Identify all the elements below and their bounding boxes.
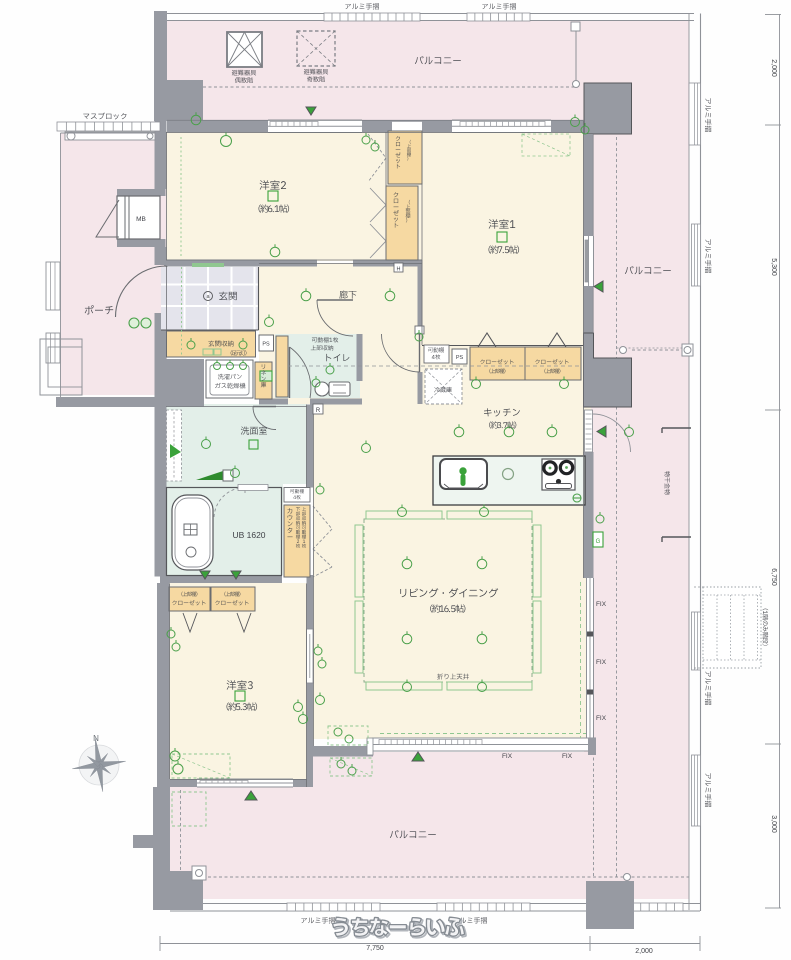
svg-text:FIX: FIX: [596, 659, 607, 666]
svg-text:7,750: 7,750: [366, 945, 384, 952]
svg-text:UB 1620: UB 1620: [232, 530, 265, 540]
svg-text:6,750: 6,750: [770, 568, 777, 586]
svg-text:2,000: 2,000: [635, 948, 653, 955]
svg-text:MB: MB: [136, 216, 146, 223]
svg-text:R: R: [316, 408, 321, 414]
svg-text:FIX: FIX: [562, 753, 573, 760]
svg-text:PS: PS: [456, 355, 464, 361]
svg-text:FIX: FIX: [596, 601, 607, 608]
svg-text:3,000: 3,000: [770, 815, 777, 833]
svg-text:FIX: FIX: [596, 715, 607, 722]
svg-text:H: H: [397, 267, 401, 273]
svg-text:PS: PS: [262, 342, 270, 348]
svg-text:FIX: FIX: [502, 753, 513, 760]
svg-text:5,300: 5,300: [770, 258, 777, 276]
svg-text:G: G: [596, 539, 601, 545]
svg-text:2,000: 2,000: [770, 59, 777, 77]
svg-text:N: N: [93, 734, 99, 743]
